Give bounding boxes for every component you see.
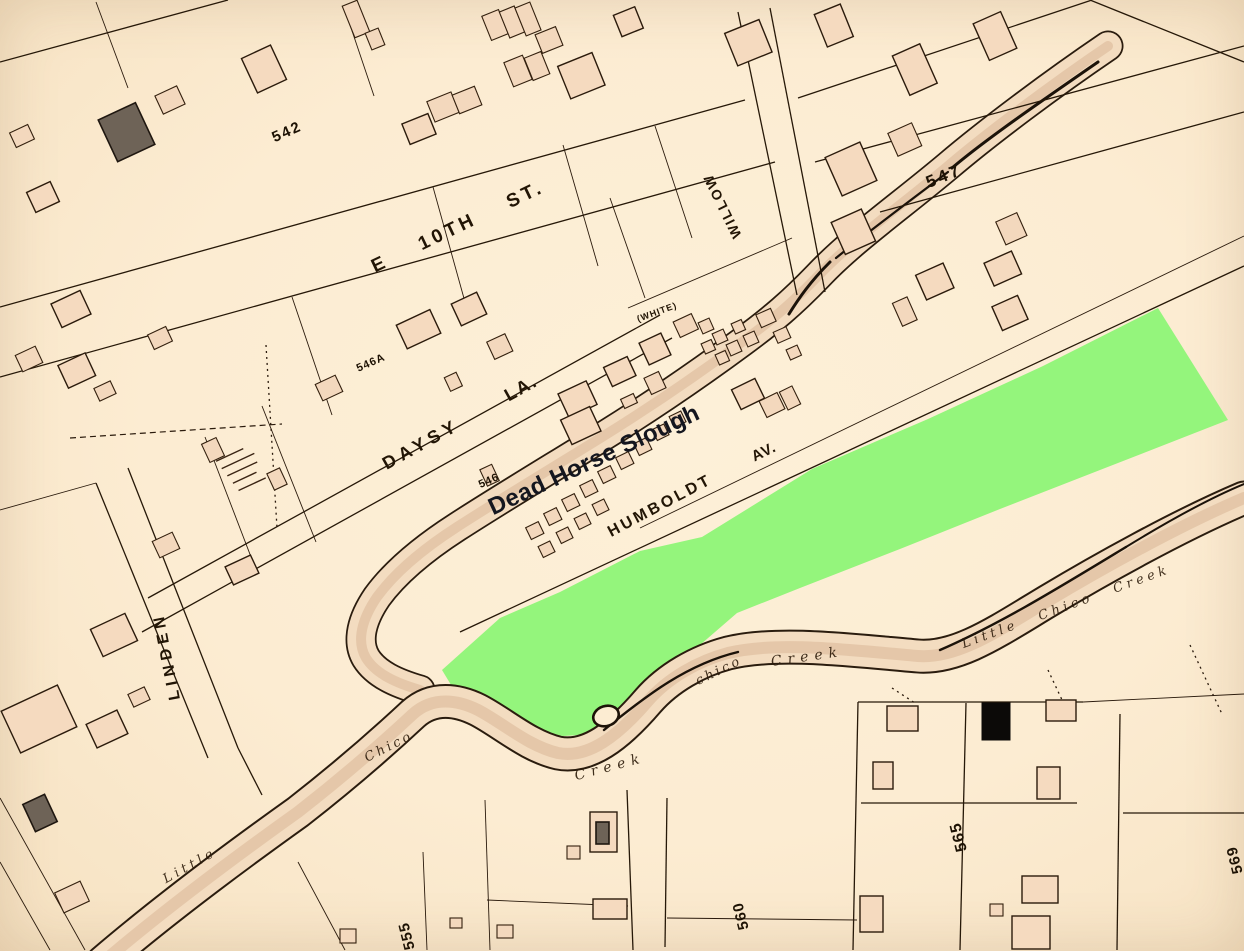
- label-block-542: 542: [269, 118, 304, 146]
- label-linden-st: LINDEN: [150, 610, 184, 701]
- black-highlighted-building[interactable]: [982, 703, 1010, 740]
- map-canvas: E 10TH ST. WILLOW 542 547 (WHITE) 546A D…: [0, 0, 1244, 951]
- label-daysy-la: LA.: [501, 371, 541, 405]
- label-block-560: 560: [729, 900, 752, 931]
- label-humboldt: HUMBOLDT: [605, 471, 715, 540]
- label-daysy: DAYSY: [379, 415, 463, 474]
- sanborn-map-page: E 10TH ST. WILLOW 542 547 (WHITE) 546A D…: [0, 0, 1244, 951]
- label-block-565: 565: [947, 821, 971, 854]
- map-labels: E 10TH ST. WILLOW 542 547 (WHITE) 546A D…: [150, 118, 1244, 951]
- label-white-alley: (WHITE): [636, 300, 679, 324]
- green-highlight-area[interactable]: [442, 308, 1228, 736]
- label-willow-st: WILLOW: [699, 171, 744, 241]
- label-block-569: 569: [1223, 844, 1244, 875]
- label-e-10th-st: E 10TH ST.: [368, 177, 548, 277]
- label-humboldt-av: AV.: [749, 439, 779, 465]
- label-block-546a: 546A: [355, 351, 388, 374]
- label-block-555: 555: [395, 920, 418, 951]
- dark-shaded-building: [98, 103, 155, 162]
